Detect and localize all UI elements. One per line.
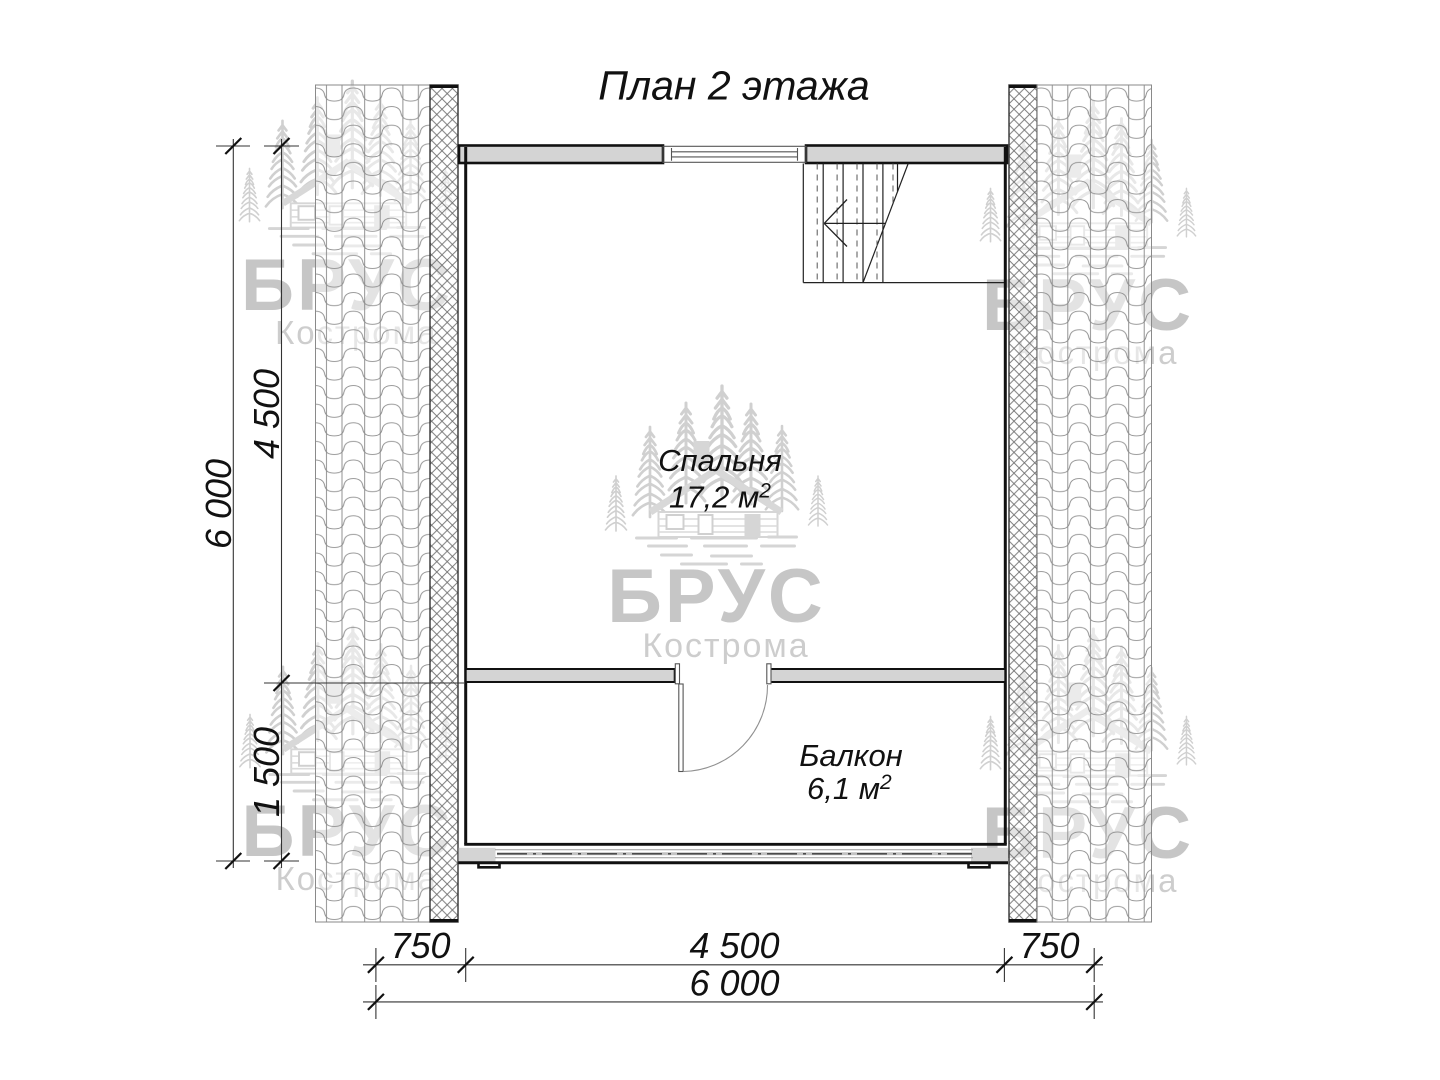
svg-text:План 2 этажа: План 2 этажа: [598, 63, 869, 109]
svg-text:750: 750: [390, 925, 450, 966]
svg-text:750: 750: [1019, 925, 1079, 966]
svg-text:Спальня: Спальня: [658, 443, 782, 478]
svg-text:4 500: 4 500: [689, 925, 779, 966]
svg-text:4 500: 4 500: [246, 369, 287, 459]
svg-text:17,2 м2: 17,2 м2: [669, 480, 771, 515]
svg-text:6 000: 6 000: [689, 963, 779, 1004]
svg-text:6 000: 6 000: [198, 459, 239, 549]
svg-text:6,1 м2: 6,1 м2: [807, 771, 892, 806]
svg-text:Балкон: Балкон: [799, 738, 903, 773]
svg-text:1 500: 1 500: [246, 727, 287, 817]
